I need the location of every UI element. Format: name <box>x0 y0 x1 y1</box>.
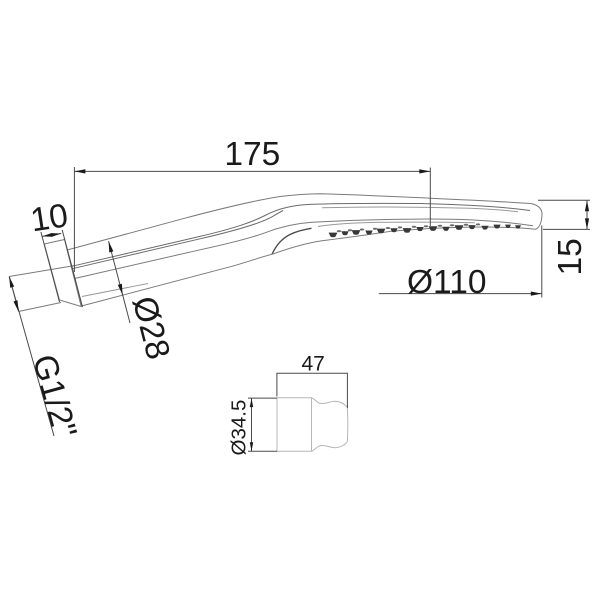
svg-text:10: 10 <box>28 197 70 239</box>
svg-text:Ø34.5: Ø34.5 <box>228 400 251 456</box>
svg-text:47: 47 <box>302 353 325 376</box>
svg-text:175: 175 <box>224 136 280 173</box>
svg-text:Ø110: Ø110 <box>407 264 486 301</box>
svg-text:15: 15 <box>552 238 589 275</box>
